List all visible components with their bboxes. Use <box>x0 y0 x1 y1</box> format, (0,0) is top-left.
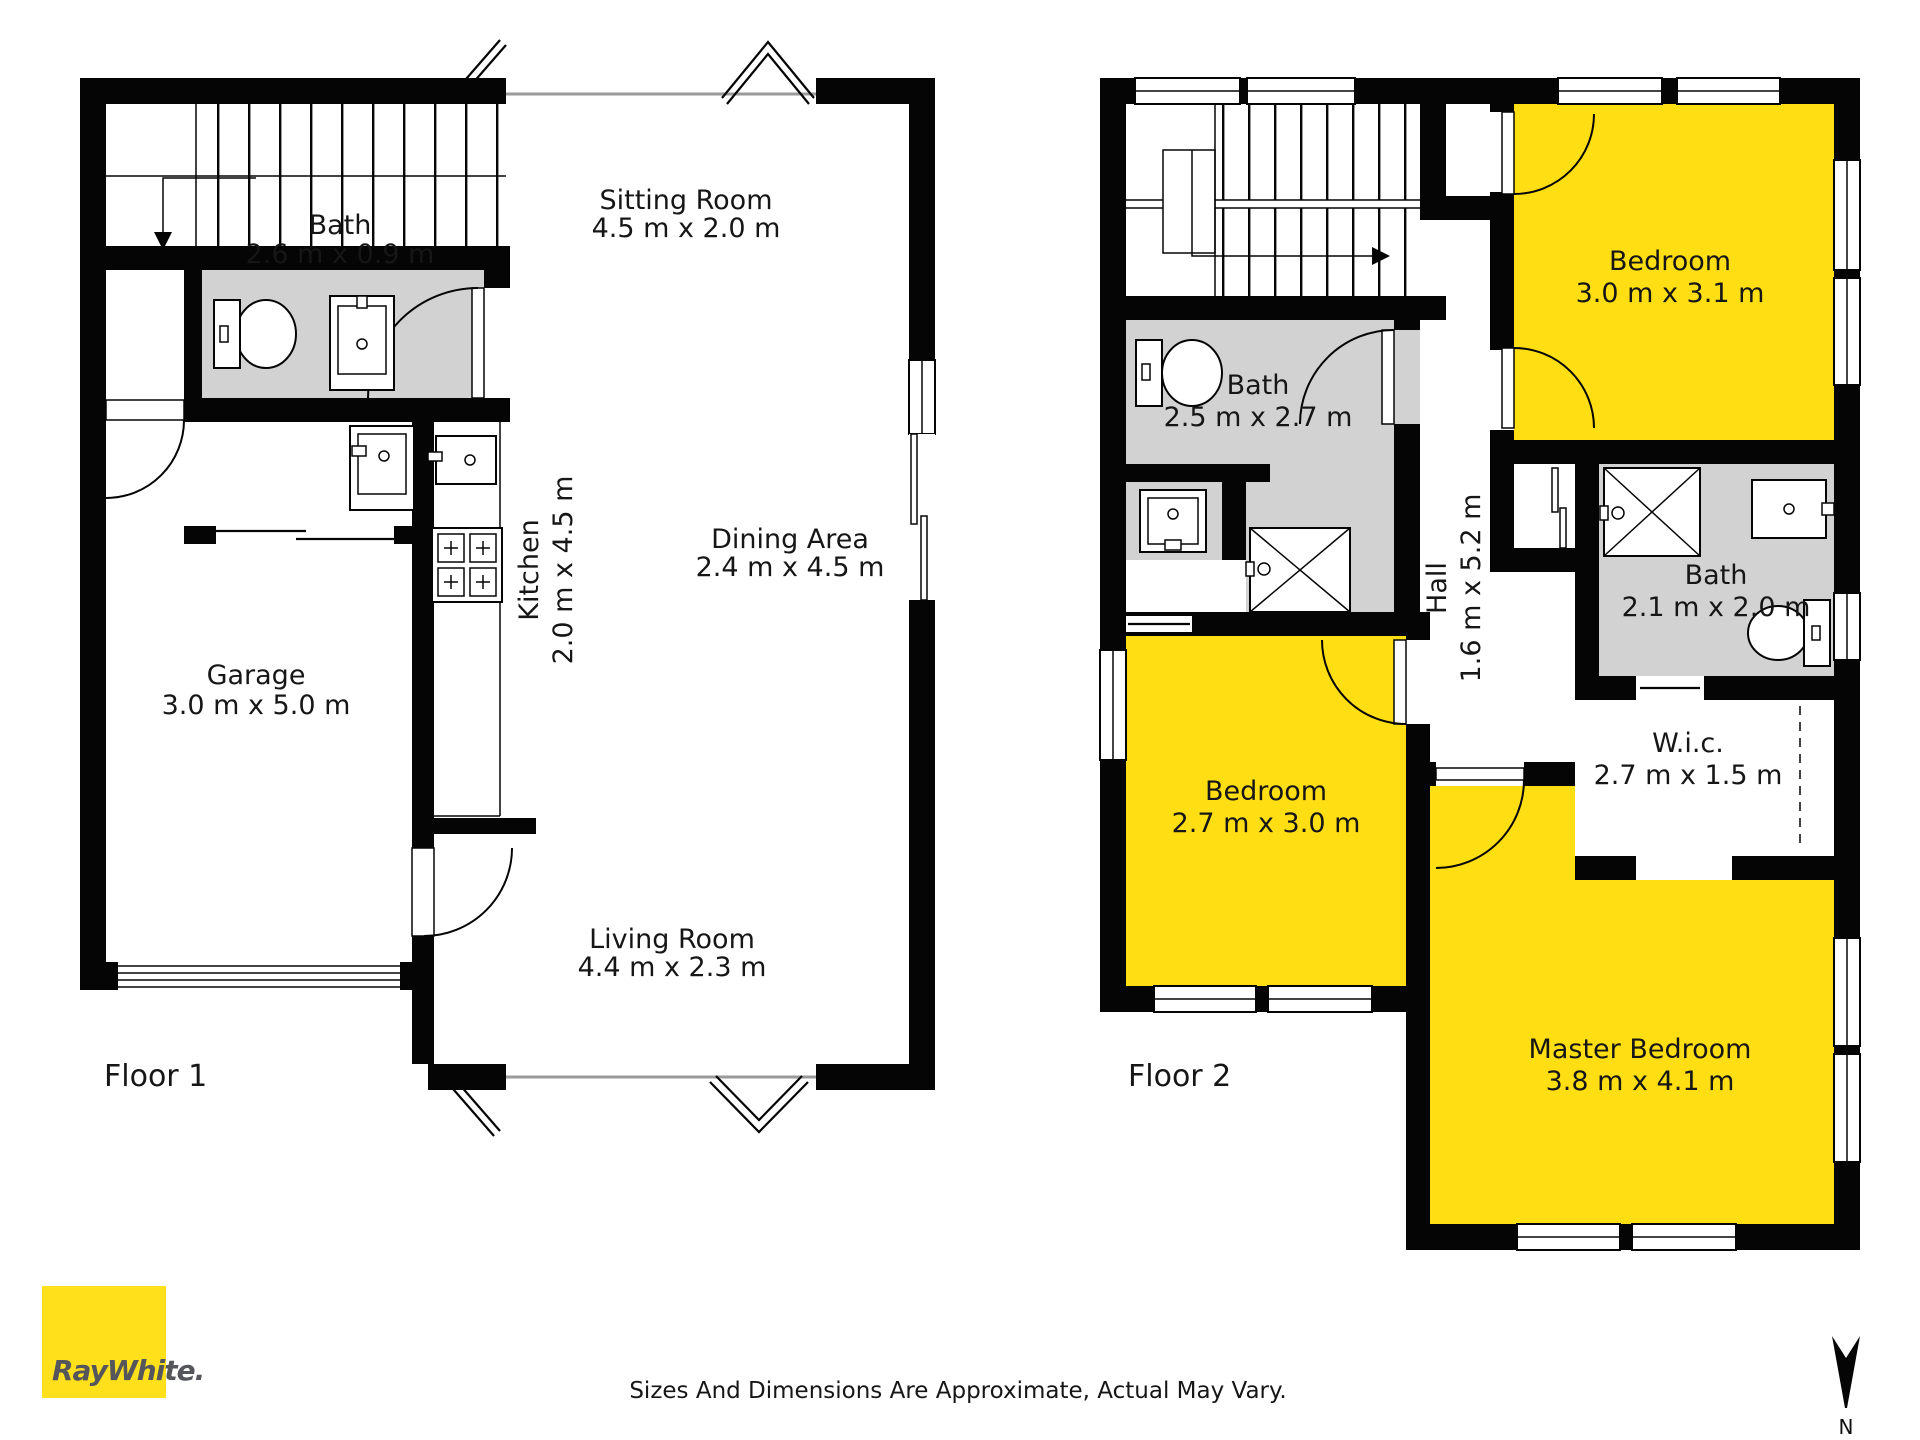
bath-top-dims: 2.5 m x 2.7 m <box>1164 402 1353 433</box>
living-room-label: Living Room <box>589 924 755 955</box>
north-arrow-icon: N <box>1832 1336 1860 1439</box>
sliding-door-dining <box>909 434 935 600</box>
master-bedroom-label: Master Bedroom <box>1529 1034 1752 1065</box>
shower-icon-bath-right <box>1600 468 1700 556</box>
shower-icon-bath-top <box>1246 528 1350 612</box>
wic-dims: 2.7 m x 1.5 m <box>1594 760 1783 791</box>
sink-icon-bath-top <box>1140 490 1206 552</box>
window-stair-2 <box>1247 78 1355 104</box>
window-bedroom-top-1 <box>1558 78 1662 104</box>
bedroom-top-dims: 3.0 m x 3.1 m <box>1576 278 1765 309</box>
hall-nook-slider <box>1126 616 1192 632</box>
floor1-title: Floor 1 <box>104 1059 207 1094</box>
garage-door <box>118 962 400 990</box>
window-bath-right <box>1834 593 1860 660</box>
floorplan-drawing: Bath 2.6 m x 0.9 m Sitting Room 4.5 m x … <box>0 0 1920 1440</box>
window-left-wall <box>1100 650 1126 760</box>
north-label: N <box>1839 1415 1854 1439</box>
dining-area-dims: 2.4 m x 4.5 m <box>696 552 885 583</box>
kitchen-label: Kitchen <box>514 519 545 620</box>
master-bedroom-dims: 3.8 m x 4.1 m <box>1546 1066 1735 1097</box>
floor2-title: Floor 2 <box>1128 1059 1231 1094</box>
bedroom-left-dims: 2.7 m x 3.0 m <box>1172 808 1361 839</box>
sink-icon-laundry <box>350 426 414 510</box>
bath-1-dims: 2.6 m x 0.9 m <box>246 239 435 270</box>
sink-icon-bath-right <box>1752 480 1834 538</box>
window-dining-right <box>909 360 935 434</box>
window-bedroom-left-1 <box>1154 986 1256 1012</box>
living-room-dims: 4.4 m x 2.3 m <box>578 952 767 983</box>
toilet-icon-floor1 <box>214 300 296 368</box>
sitting-room-dims: 4.5 m x 2.0 m <box>592 213 781 244</box>
bedroom-left-label: Bedroom <box>1205 776 1327 807</box>
bath-right-label: Bath <box>1685 560 1748 591</box>
dining-area-label: Dining Area <box>711 524 869 555</box>
raywhite-logo-text: RayWhite. <box>52 1354 204 1387</box>
bedroom-top-label: Bedroom <box>1609 246 1731 277</box>
bath-right-dims: 2.1 m x 2.0 m <box>1622 592 1811 623</box>
floorplan-page: Bath 2.6 m x 0.9 m Sitting Room 4.5 m x … <box>0 0 1920 1440</box>
master-bedroom-area-left <box>1430 786 1575 1224</box>
hall-label: Hall <box>1422 562 1453 614</box>
bath-right-slider-door <box>1636 676 1704 700</box>
window-master-right-1 <box>1834 938 1860 1046</box>
garage-label: Garage <box>207 660 306 691</box>
stove-icon <box>432 528 502 602</box>
kitchen-dims: 2.0 m x 4.5 m <box>548 476 579 665</box>
bath-top-label: Bath <box>1227 370 1290 401</box>
sink-icon-kitchen <box>428 436 496 484</box>
window-stair-1 <box>1135 78 1240 104</box>
window-master-right-2 <box>1834 1054 1860 1162</box>
sink-icon-bath1 <box>330 296 394 390</box>
wic-label: W.i.c. <box>1652 728 1724 759</box>
window-bedroom-top-right-1 <box>1834 160 1860 270</box>
window-master-bottom-1 <box>1517 1224 1620 1250</box>
window-bedroom-top-2 <box>1677 78 1780 104</box>
footer: RayWhite. Sizes And Dimensions Are Appro… <box>42 1286 1860 1439</box>
wic-opening <box>1636 856 1732 880</box>
window-master-bottom-2 <box>1632 1224 1736 1250</box>
toilet-icon-bath-top <box>1136 340 1222 406</box>
disclaimer-text: Sizes And Dimensions Are Approximate, Ac… <box>629 1378 1286 1404</box>
floor1-plan: Bath 2.6 m x 0.9 m Sitting Room 4.5 m x … <box>80 40 935 1136</box>
hall-dims: 1.6 m x 5.2 m <box>1456 494 1487 683</box>
sitting-room-label: Sitting Room <box>599 185 772 216</box>
window-bedroom-left-2 <box>1268 986 1372 1012</box>
floor2-plan: Bath 2.5 m x 2.7 m Bedroom 3.0 m x 3.1 m… <box>1100 78 1860 1250</box>
bath-1-label: Bath <box>309 210 372 241</box>
window-bedroom-top-right-2 <box>1834 278 1860 385</box>
raywhite-logo: RayWhite. <box>42 1286 204 1398</box>
garage-dims: 3.0 m x 5.0 m <box>162 690 351 721</box>
